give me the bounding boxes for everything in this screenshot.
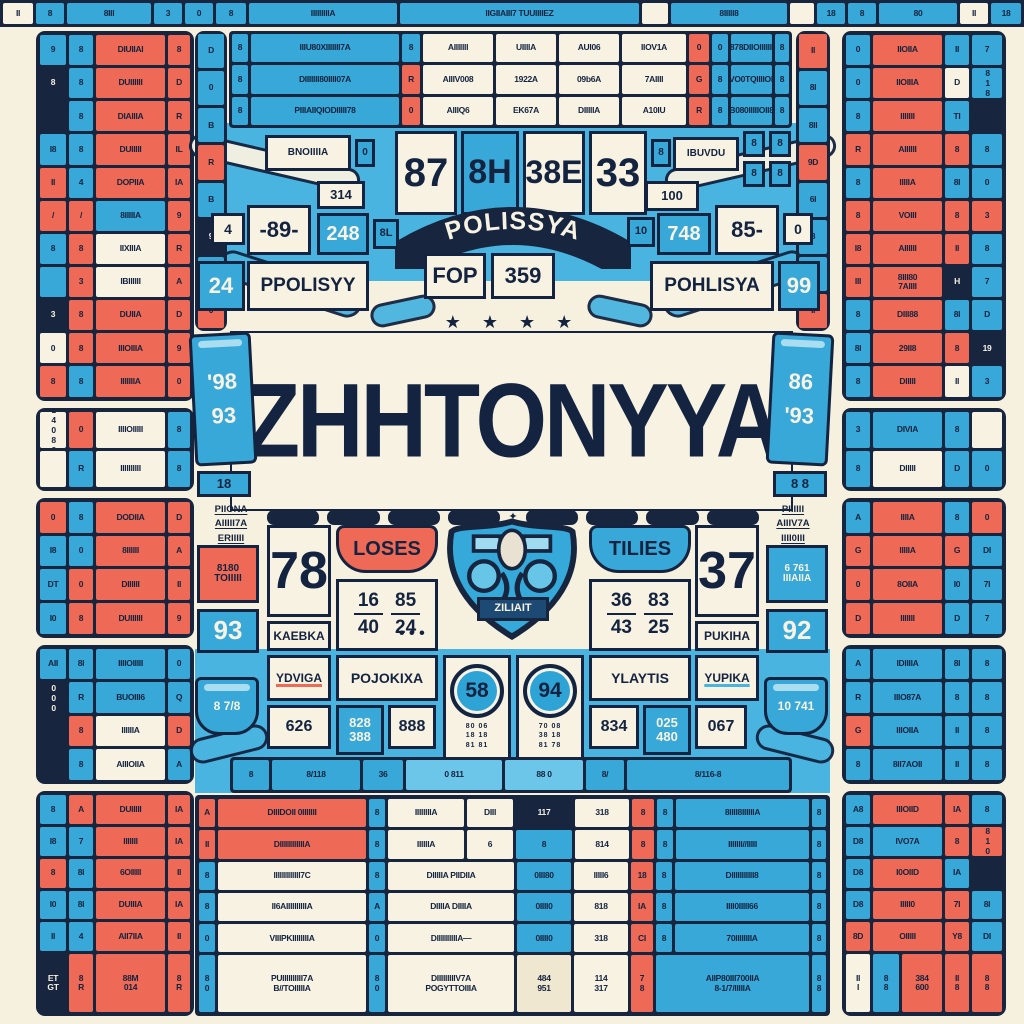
cell: 114 317: [574, 955, 628, 1012]
cell: IIIII0: [873, 891, 942, 920]
dots-left: • • •: [399, 625, 437, 643]
cell: 8 8: [972, 954, 1002, 1012]
ribbon-number: '98: [207, 368, 238, 396]
header-small-cell: 0: [355, 139, 375, 167]
cell: AIIIIIII: [423, 34, 493, 62]
cell: IIIU80XIIIIIII7A: [251, 34, 399, 62]
cell: 0: [689, 34, 709, 62]
cell: II 8: [945, 954, 969, 1012]
cell: 8: [775, 65, 789, 93]
cell: 8: [812, 830, 826, 858]
cell: [40, 749, 66, 780]
cell: 88 0: [505, 760, 583, 790]
stat-label-kaebka: KAEBKA: [267, 621, 331, 651]
cell: 8: [632, 830, 654, 858]
table-row: I87IIIIIIIIA: [40, 827, 190, 856]
cell: AII7IIA: [96, 922, 165, 951]
ribbon-highlight: [198, 339, 242, 348]
player-name-box: YDVIGA: [267, 655, 331, 701]
cell: AIIP80III700IIA 8-1/7/IIIIIA: [656, 955, 809, 1012]
cell: D: [972, 300, 1002, 330]
right-stat-grid: 36 83 43 25: [589, 579, 691, 651]
table-row: II88III308IIIIIIIIIAIIGIIAIII7 TUUIIIIEZ…: [3, 3, 1021, 24]
cell: D: [945, 451, 969, 487]
cell: 0: [69, 536, 93, 567]
top-rows-cells: 8IIIU80XIIIIIII7A8AIIIIIIIUIIIIAAUI06IIO…: [232, 34, 789, 125]
cell: DUIIA: [96, 300, 165, 330]
table-row: 8DOIIIIIY8DI: [846, 922, 1002, 951]
cell: IIOIIA: [873, 35, 942, 65]
right-title-ribbon: 86 '93: [766, 331, 835, 466]
cell: 9: [40, 35, 66, 65]
table-row: II: [799, 34, 827, 68]
cell: 7I: [945, 891, 969, 920]
cell: 8/118: [272, 760, 360, 790]
cell: DUIIIIII: [96, 603, 165, 634]
header-small-cell: 8: [743, 131, 765, 157]
cell: A: [69, 795, 93, 824]
table-row: 8IIIIIA8I0: [846, 168, 1002, 198]
cell: 8IIII8IIIIIIA: [676, 799, 809, 827]
cell: 8I: [846, 333, 870, 363]
table-row: 3IBIIIIIIA: [40, 267, 190, 297]
table-row: IIDIIIIIIIIIIIIA8IIIIIIA6881488IIIIIII//…: [199, 830, 826, 858]
table-row: 8II: [799, 108, 827, 142]
cell: A: [846, 649, 870, 680]
left-lower-ribbon: 8 7/8: [195, 677, 259, 735]
cell: R: [402, 65, 420, 93]
table-row: 8DIII888ID: [846, 300, 1002, 330]
cell: IA: [631, 893, 653, 921]
table-row: I08IDUIIIAIA: [40, 891, 190, 920]
cell: IIII0IIIII66: [675, 893, 809, 921]
stat-value: 16: [354, 590, 383, 615]
cell: /: [69, 201, 93, 231]
cell: II6AIIIIIIIIIIA: [218, 893, 366, 921]
table-row: 8IIIIIIITI: [846, 101, 1002, 131]
cell: 8: [69, 35, 93, 65]
cell: UIIIIA: [496, 34, 556, 62]
table-row: 0VIIIPKIIIIIIIIA0DIIIIIIIIIIA—0IIII0318C…: [199, 924, 826, 952]
right-table-section-c: AIIIIA80GIIIIIAGDI08OIIAI07IDIIIIIIID7: [842, 498, 1006, 637]
cell: 8: [40, 366, 66, 396]
stat-number-box: 834: [589, 705, 639, 749]
right-column-number: 92: [766, 609, 828, 653]
cell: IIIIIIIIIIIII7C: [218, 862, 366, 890]
cell: 8: [812, 893, 826, 921]
cell: 8: [69, 749, 93, 780]
cell: IIIIIII: [873, 101, 942, 131]
cell: 7 8: [631, 955, 653, 1012]
cell: [972, 101, 1002, 131]
cell: G: [945, 536, 969, 567]
stat-number-box: 888: [388, 705, 436, 749]
cell: [40, 716, 66, 747]
cell: 8: [69, 300, 93, 330]
table-row: 8PIIIAIIQIODIIIII780AIIIQ6EK67ADIIIIIAA1…: [232, 97, 789, 125]
ribbon-number: 86: [788, 368, 814, 395]
table-row: I808IIIIIIA: [40, 536, 190, 567]
cell: 4: [69, 168, 93, 198]
cell: 88M 014: [96, 954, 165, 1012]
cell: D: [168, 68, 190, 98]
cell: I0: [40, 603, 66, 634]
cell: 8: [36, 3, 64, 24]
cell: 6: [467, 830, 513, 858]
cell: 8: [656, 893, 672, 921]
cell: 8: [972, 749, 1002, 780]
cell: 7: [972, 35, 1002, 65]
cell: DUIIIIII: [96, 68, 165, 98]
cell: 818: [574, 893, 628, 921]
cell: 8: [168, 451, 190, 487]
table-row: 38DUIIAD: [40, 300, 190, 330]
table-row: 8DIIIIIII80IIII07ARAIIIV0081922A09b6A7AI…: [232, 65, 789, 93]
mini-table: 70 08 38 18 81 78: [539, 722, 562, 750]
cell: 8/116-8: [627, 760, 789, 790]
small-number-box: 4: [211, 213, 245, 245]
cell: DUIIIII: [96, 134, 165, 164]
cell: DUIIIII: [96, 795, 165, 824]
cell: IIIOIIA: [873, 716, 942, 747]
top-bar-cells: II88III308IIIIIIIIIAIIGIIAIII7 TUUIIIIEZ…: [3, 3, 1021, 24]
cell: A: [369, 893, 385, 921]
cell: DIIIIIIIIIII8: [675, 862, 809, 890]
stat-value: 40: [354, 617, 383, 640]
cell: 8: [40, 234, 66, 264]
cell: D: [168, 716, 190, 747]
cell: I0: [945, 569, 969, 600]
table-row: II4DOPIIAIA: [40, 168, 190, 198]
cell: IA: [945, 859, 969, 888]
cell: R: [69, 682, 93, 713]
stat-number-box: 626: [267, 705, 331, 749]
table-row: 88DUIIIIIID: [40, 68, 190, 98]
header-label-box: IBUVDU: [673, 137, 739, 171]
poster: II88III308IIIIIIIIIAIIGIIAIII7 TUUIIIIEZ…: [0, 0, 1024, 1024]
header-label-box: BNOIIIIA: [265, 135, 351, 171]
stat-number-box: 067: [695, 705, 747, 749]
cell: 3: [40, 300, 66, 330]
pohlisya-box: POHLISYA: [650, 261, 774, 311]
table-row: D: [198, 34, 224, 68]
header-small-cell: 8: [769, 131, 791, 157]
cell: 8: [775, 34, 789, 62]
table-row: 88II7AOIIII8: [846, 749, 1002, 780]
table-row: 140860IIIIOIIIII8: [40, 412, 190, 448]
cell: 0IIII0: [517, 924, 571, 952]
cell: 8: [69, 101, 93, 131]
cell: 0: [168, 649, 190, 680]
cell: 8: [369, 862, 385, 890]
cell: 318: [575, 799, 629, 827]
cell: IIIIIII: [96, 827, 165, 856]
cell: [40, 451, 66, 487]
cell: OIIIII: [873, 922, 942, 951]
cell: 8 R: [69, 954, 93, 1012]
cell: 7I: [972, 569, 1002, 600]
cell: 8: [232, 97, 248, 125]
club-crest-icon: [438, 517, 586, 641]
cell: IIIIIIIIA: [388, 799, 464, 827]
cell: 8: [945, 134, 969, 164]
cell: IA: [168, 827, 190, 856]
cell: G: [846, 716, 870, 747]
cell: 8: [972, 716, 1002, 747]
table-row: ET GT8 R88M 0148 R: [40, 954, 190, 1012]
cell: DIIIDOII 0IIIIIII: [218, 799, 366, 827]
player-name-box: POJOKIXA: [336, 655, 438, 701]
cell: A: [199, 799, 215, 827]
cell: B: [198, 108, 224, 142]
cell: DIAIIIA: [96, 101, 165, 131]
player-name-box: YLAYTIS: [589, 655, 691, 701]
cell: 810: [972, 827, 1002, 856]
cell: IIXIIIA: [96, 234, 165, 264]
cell: 8: [846, 201, 870, 231]
cell: 9: [168, 201, 190, 231]
right-table-section-a: 0IIOIIAII70IIOIIIAD8188IIIIIIITIRAIIIIII…: [842, 31, 1006, 401]
cell: 0III80: [517, 862, 571, 890]
cell: DT: [40, 569, 66, 600]
title-banner: ZHHTONYYA: [230, 331, 793, 511]
cell: 8: [972, 234, 1002, 264]
table-row: 88IIXIIIAR: [40, 234, 190, 264]
cell: G: [846, 536, 870, 567]
cell: D: [945, 603, 969, 634]
cell: 3: [972, 366, 1002, 396]
cell: 80: [879, 3, 957, 24]
cell: DUIIIA: [96, 891, 165, 920]
cell: 8D: [846, 922, 870, 951]
table-row: II I8 8384 600II 88 8: [846, 954, 1002, 1012]
table-row: B: [198, 183, 224, 217]
cell: 8: [168, 35, 190, 65]
cell: 8: [69, 502, 93, 533]
cell: 8: [168, 412, 190, 448]
cell: 8IIIII8: [671, 3, 787, 24]
cell: DI: [972, 922, 1002, 951]
table-row: AIIIIA80: [846, 502, 1002, 533]
table-row: 0IIOIIAII7: [846, 35, 1002, 65]
cell: IA: [168, 891, 190, 920]
cell: 8IIIIIA: [96, 201, 165, 231]
cell: VOIII: [873, 201, 942, 231]
right-lower-ribbon: 10 741: [764, 677, 828, 735]
table-row: RIIIO87A88: [846, 682, 1002, 713]
header-small-cell: 8: [769, 161, 791, 187]
ribbon-number: 8 7/8: [214, 699, 241, 713]
crest-banner: ZILIAIT: [477, 597, 549, 621]
table-row: AII8IIIIIOIIIII0: [40, 649, 190, 680]
number-box-89: -89-: [247, 205, 311, 255]
table-row: III8III80 7AIIIIH7: [846, 267, 1002, 297]
cell: 8: [233, 760, 269, 790]
cell: IIIIOIIIII: [96, 412, 165, 448]
cell: VIIIPKIIIIIIIIA: [218, 924, 366, 952]
table-row: 8DIIIIID0: [846, 451, 1002, 487]
cell: DIIIIII: [96, 569, 165, 600]
cell: ET GT: [40, 954, 66, 1012]
ribbon-number: '93: [784, 402, 815, 430]
table-row: 8I: [799, 71, 827, 105]
cell: IIIIIIIIIA: [249, 3, 397, 24]
cell: II: [168, 859, 190, 888]
cell: 6I: [799, 183, 827, 217]
cell: 1922A: [496, 65, 556, 93]
cell: B: [198, 183, 224, 217]
small-number-box: 8L: [373, 219, 399, 249]
table-row: 98DIUIIAI8: [40, 35, 190, 65]
cell: EVO0TQIIIIOII8: [731, 65, 772, 93]
cell: I8: [846, 234, 870, 264]
cell: 8: [657, 830, 673, 858]
cell: 8: [656, 862, 672, 890]
cell: AIIIV008: [423, 65, 493, 93]
cell: PIIIAIIQIODIIIII78: [251, 97, 399, 125]
cell: AIIIIII: [873, 234, 942, 264]
left-table-section-e: 8ADUIIIIIIAI87IIIIIIIIA88I6OIIIIIIII08ID…: [36, 791, 194, 1016]
cell: TI: [945, 101, 969, 131]
cell: IBIIIIII: [96, 267, 165, 297]
cell: IVO7A: [873, 827, 942, 856]
cell: IIIIA: [873, 502, 942, 533]
cell: 8: [40, 68, 66, 98]
cell: D: [168, 502, 190, 533]
cell: 18: [817, 3, 845, 24]
cell: 8: [812, 799, 826, 827]
stat-value: 85: [391, 590, 420, 615]
cell: 8: [40, 859, 66, 888]
cell: II: [799, 34, 827, 68]
cell: 3: [972, 201, 1002, 231]
table-row: 8 0PUIIIIIIIIII7A B//TOIIIIIA8 0DIIIIIII…: [199, 955, 826, 1012]
table-row: 8IIIU80XIIIIIII7A8AIIIIIIIUIIIIAAUI06IIO…: [232, 34, 789, 62]
cell: A: [168, 536, 190, 567]
table-row: 00008RBUOIII6Q: [40, 682, 190, 713]
cell: 8: [232, 65, 248, 93]
cell: B080IIIIIOII8: [731, 97, 772, 125]
cell: 36: [363, 760, 403, 790]
stat-value: 36: [607, 590, 636, 615]
big-stat-37: 37: [695, 525, 759, 617]
cell: DIIIIIIIIIIA—: [388, 924, 514, 952]
small-number-box: 314: [317, 181, 365, 209]
cell: 8I: [945, 300, 969, 330]
cell: 8II7AOII: [873, 749, 942, 780]
cell: IA: [945, 795, 969, 824]
cell: DIIIIIIIIIIIIA: [218, 830, 366, 858]
cell: 484 951: [517, 955, 571, 1012]
cell: [40, 101, 66, 131]
cell: 8: [972, 649, 1002, 680]
cell: 18: [991, 3, 1021, 24]
cell: A: [846, 502, 870, 533]
cell: 8: [69, 366, 93, 396]
cell: 8: [945, 201, 969, 231]
table-row: RIIIIIIIIII8: [40, 451, 190, 487]
cell: IIIIIIA: [96, 716, 165, 747]
cell: 8: [848, 3, 876, 24]
cell: 7: [972, 603, 1002, 634]
cell: II I: [846, 954, 870, 1012]
cell: 8 0: [199, 955, 215, 1012]
cell: 0: [69, 412, 93, 448]
cell: 8: [69, 603, 93, 634]
stars-row-icon: ★ ★ ★ ★: [395, 313, 630, 331]
table-row: DT0DIIIIIIII: [40, 569, 190, 600]
table-row: 08IIIOIIIA9: [40, 333, 190, 363]
table-row: 0IIOIIIAD818: [846, 68, 1002, 98]
cell: DI: [972, 536, 1002, 567]
cell: II: [945, 749, 969, 780]
right-table-section-e: A8IIIOIIDIA8D8IVO7A8810D8I0OIIDIAD8IIIII…: [842, 791, 1006, 1016]
mini-table: 80 06 18 18 81 81: [466, 722, 489, 750]
cell: 19: [972, 333, 1002, 363]
cell: 8: [516, 830, 572, 858]
left-stats-table: 98DIUIIAI888DUIIIIIID8DIAIIIARI88DUIIIII…: [36, 31, 194, 1016]
cell: Q: [168, 682, 190, 713]
cell: /: [40, 201, 66, 231]
cell: 0: [846, 68, 870, 98]
cell: IA: [168, 168, 190, 198]
cell: 8 8: [873, 954, 899, 1012]
cell: 6OIIIII: [96, 859, 165, 888]
ppolisyy-box: PPOLISYY: [247, 261, 369, 311]
table-row: 8I29II8819: [846, 333, 1002, 363]
cell: R: [168, 234, 190, 264]
cell: D8: [846, 827, 870, 856]
right-table-section-d: AIDIIIIA8I8RIIIO87A88GIIIOIIAII888II7AOI…: [842, 645, 1006, 784]
cell: 8OIIA: [873, 569, 942, 600]
table-row: II4AII7IIAII: [40, 922, 190, 951]
cell: 8: [846, 749, 870, 780]
cell: 8: [945, 682, 969, 713]
ribbon-number: 93: [211, 402, 237, 429]
cell: R: [846, 682, 870, 713]
cell: II: [168, 569, 190, 600]
ribbon-highlight: [204, 684, 250, 691]
cell: 8: [232, 34, 248, 62]
cell: R: [846, 134, 870, 164]
table-row: GIIIIIAGDI: [846, 536, 1002, 567]
cell: 8: [846, 366, 870, 396]
cell: 8I: [799, 71, 827, 105]
cell: II: [960, 3, 988, 24]
cell: DIIIIIIIIIV7A POGYTTOIIIA: [388, 955, 514, 1012]
top-bar: II88III308IIIIIIIIIAIIGIIAIII7 TUUIIIIEZ…: [0, 0, 1024, 27]
left-title-ribbon: '98 93: [189, 331, 258, 466]
table-row: 6I: [799, 183, 827, 217]
cell: II: [199, 830, 215, 858]
cell: 8: [69, 333, 93, 363]
table-row: 3DIVIA8: [846, 412, 1002, 448]
cell: 8: [69, 134, 93, 164]
cell: DODIIA: [96, 502, 165, 533]
cell: 70IIIIIIIIA: [675, 924, 809, 952]
cell: DIII: [467, 799, 513, 827]
tilies-badge: TILIES: [589, 525, 691, 573]
table-row: 8II6AIIIIIIIIIIAADIIIIA DIIIIA0IIII0818I…: [199, 893, 826, 921]
cell: 9: [168, 603, 190, 634]
cell: IL: [168, 134, 190, 164]
cell: IIIII6: [574, 862, 628, 890]
cell: 8: [69, 716, 93, 747]
table-row: 8VOIII83: [846, 201, 1002, 231]
small-number-box: 10: [627, 217, 655, 247]
cell: DIIIIA DIIIIA: [388, 893, 514, 921]
cell: II: [945, 366, 969, 396]
